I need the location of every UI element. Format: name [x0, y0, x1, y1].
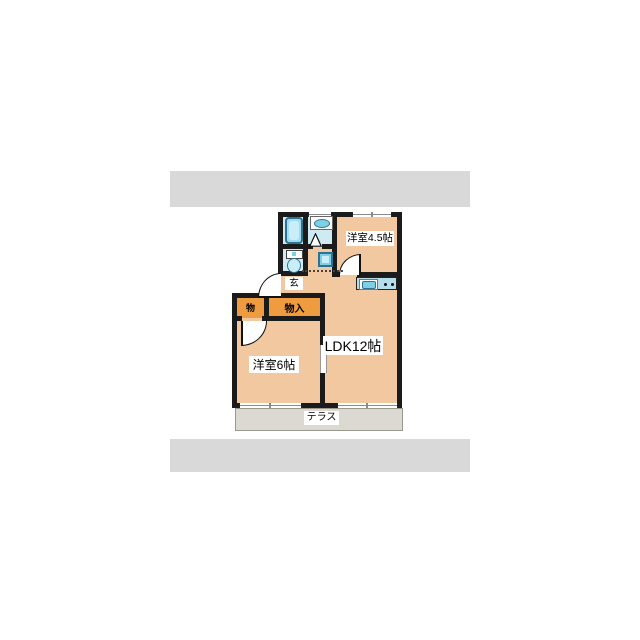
closet-small-label: 物 [246, 301, 255, 314]
room6-label-box: 洋室6帖 [249, 356, 299, 373]
ldk-label-box: LDK12帖 [323, 336, 383, 355]
stove-burner-icon [384, 283, 387, 286]
folding-door-icon [309, 233, 322, 247]
room6-label: 洋室6帖 [253, 359, 296, 371]
washing-machine-icon [318, 252, 333, 267]
room45-label-box: 洋室4.5帖 [346, 231, 394, 246]
window-ldk-terrace [337, 403, 398, 408]
genkan-label: 玄 [289, 279, 299, 289]
closet-label: 物入 [285, 300, 305, 315]
ldk-label: LDK12帖 [325, 339, 382, 353]
washbasin-sink-icon [310, 216, 333, 230]
closet-small-box: 物 [237, 296, 264, 318]
toilet-icon [286, 250, 303, 272]
bathtub-icon [285, 217, 303, 244]
terrace-label-box: テラス [304, 411, 339, 425]
wall-room6-ldk-lower [320, 373, 325, 403]
genkan-label-box: 玄 [285, 277, 303, 290]
entrance-door-arc [258, 273, 281, 298]
room45-label: 洋室4.5帖 [347, 233, 393, 244]
wall-closet-bottom [262, 316, 325, 321]
wall-left-upper [278, 212, 283, 274]
bottom-gray-band [170, 439, 470, 472]
window-room6-terrace [239, 403, 302, 408]
hall-ldk-dotted-boundary [302, 270, 343, 272]
terrace-label: テラス [307, 413, 337, 423]
stove-burner-icon [391, 283, 394, 286]
closet-box: 物入 [269, 296, 320, 318]
wall-left-lower [232, 293, 237, 408]
kitchen-sink-icon [359, 279, 378, 290]
wall-right [397, 212, 402, 408]
kitchen-counter [356, 277, 397, 290]
top-gray-band [170, 171, 470, 207]
floorplan-image: 物 物入 [0, 0, 640, 640]
window-room45-top [352, 212, 392, 217]
